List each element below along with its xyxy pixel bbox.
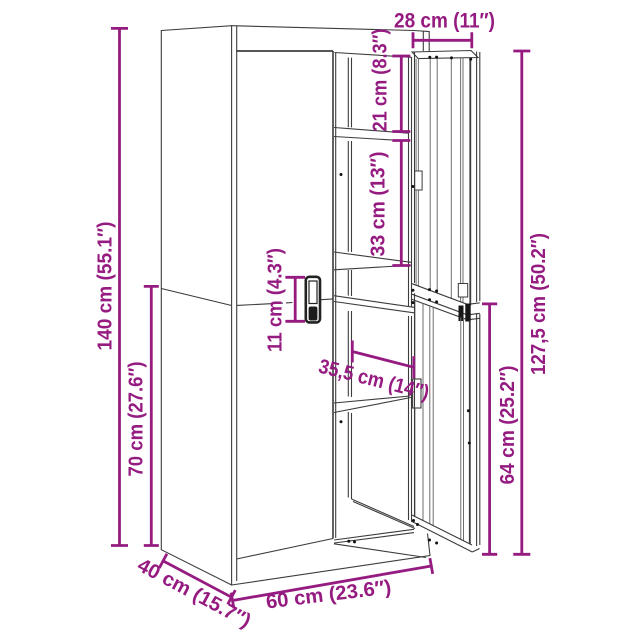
svg-text:127,5 cm (50.2″): 127,5 cm (50.2″) bbox=[527, 233, 550, 375]
svg-text:21 cm (8.3″): 21 cm (8.3″) bbox=[369, 29, 392, 132]
svg-text:28 cm (11″): 28 cm (11″) bbox=[394, 9, 495, 33]
svg-text:33 cm (13″): 33 cm (13″) bbox=[367, 152, 390, 257]
svg-text:140 cm (55.1″): 140 cm (55.1″) bbox=[94, 222, 117, 351]
svg-text:70 cm (27.6″): 70 cm (27.6″) bbox=[125, 362, 148, 477]
svg-text:64 cm (25.2″): 64 cm (25.2″) bbox=[496, 366, 519, 485]
svg-text:11 cm (4.3″): 11 cm (4.3″) bbox=[263, 248, 286, 352]
